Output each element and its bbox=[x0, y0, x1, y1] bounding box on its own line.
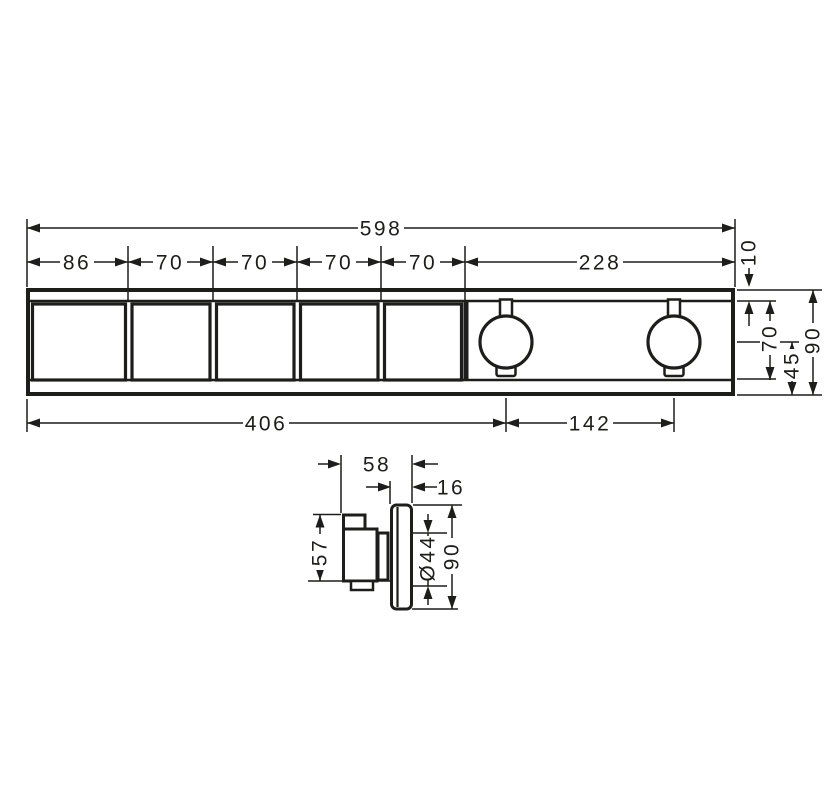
dim-handle-spacing-label: 142 bbox=[569, 413, 612, 436]
front-view bbox=[26, 290, 735, 394]
dim-segment-4-label: 70 bbox=[325, 252, 353, 275]
technical-drawing: 598 86 70 70 70 70 228 10 70 45 90 406 1… bbox=[0, 0, 828, 800]
panel-outline bbox=[28, 290, 733, 394]
handle-body-profile bbox=[344, 529, 378, 581]
side-view-dimensions: 58 16 57 Ø44 90 bbox=[308, 454, 465, 610]
dim-segment-3-label: 70 bbox=[241, 252, 269, 275]
dim-rim-height-label: 10 bbox=[738, 238, 761, 266]
escutcheon-plate-profile bbox=[392, 505, 412, 609]
side-view bbox=[344, 505, 412, 609]
dim-total-height-label: 90 bbox=[802, 326, 825, 354]
dim-total-depth-label: 58 bbox=[363, 454, 391, 477]
cartridge-shaft-profile bbox=[378, 533, 388, 580]
dim-escutcheon-diameter-label: Ø44 bbox=[417, 534, 440, 581]
handle-tab-profile bbox=[351, 581, 373, 590]
dim-segment-5-label: 70 bbox=[409, 252, 437, 275]
dim-inner-height-label: 70 bbox=[759, 324, 782, 352]
dim-segment-6-label: 228 bbox=[579, 252, 622, 275]
dim-escutcheon-depth-label: 16 bbox=[437, 477, 465, 500]
handle-2-knob bbox=[648, 316, 700, 368]
drawing-canvas: 598 86 70 70 70 70 228 10 70 45 90 406 1… bbox=[0, 0, 828, 800]
dim-center-to-bottom-label: 45 bbox=[781, 351, 804, 379]
dim-segment-2-label: 70 bbox=[156, 252, 184, 275]
dim-escutcheon-height-label: 90 bbox=[441, 542, 464, 570]
dim-left-to-handle1-label: 406 bbox=[245, 413, 288, 436]
handle-grip-profile bbox=[344, 515, 366, 529]
dim-handle-height-label: 57 bbox=[309, 538, 332, 566]
dim-segment-1-label: 86 bbox=[63, 252, 91, 275]
handle-1-knob bbox=[480, 316, 532, 368]
dim-total-width-label: 598 bbox=[360, 218, 403, 241]
